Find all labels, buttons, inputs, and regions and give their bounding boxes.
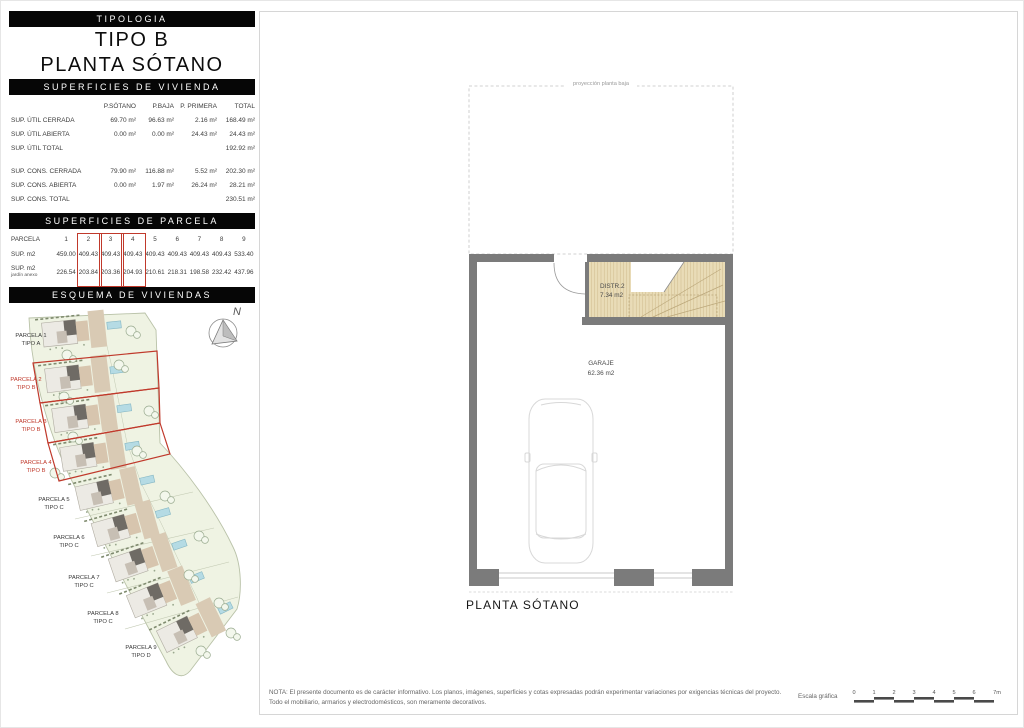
north-compass-icon: N	[209, 306, 241, 347]
plan-caption: PLANTA SÓTANO	[466, 598, 580, 612]
svg-text:0: 0	[852, 690, 855, 696]
parcel-label-4: PARCELA 4 TIPO B	[20, 460, 51, 475]
scale-ticks: 0 1 2 3 4 5 6 7m	[852, 690, 1001, 696]
section-header-superficies-vivienda: SUPERFICIES DE VIVIENDA	[9, 79, 255, 95]
site-plan: N PARCELA 1 TIPO A PARCELA 2 TIPO B PARC…	[9, 303, 257, 691]
svg-text:1: 1	[872, 690, 875, 696]
svg-text:2: 2	[892, 690, 895, 696]
parcel-label-7: PARCELA 7 TIPO C	[68, 575, 99, 590]
projection-label: proyección planta baja	[573, 81, 630, 87]
parcela-table: PARCELA 1 2 3 4 5 6 7 8 9 SUP. m2 459.00…	[9, 232, 255, 282]
scale-label: Escala gráfica	[798, 693, 838, 700]
room-garaje-name: GARAJE	[588, 360, 614, 367]
disclaimer-note: NOTA: El presente documento es de caráct…	[269, 688, 799, 708]
note-line-2: Todo el mobiliario, armarios y electrodo…	[269, 698, 799, 708]
parcel-label-2: PARCELA 2 TIPO B	[10, 377, 41, 392]
parcel-label-8: PARCELA 8 TIPO C	[87, 611, 118, 626]
svg-text:3: 3	[912, 690, 915, 696]
highlight-box-parcela-4	[121, 233, 146, 287]
note-line-1: NOTA: El presente documento es de caráct…	[269, 688, 799, 698]
car-icon	[525, 399, 597, 563]
graphic-scale-bar: 0 1 2 3 4 5 6 7m	[851, 687, 1011, 705]
svg-text:4: 4	[932, 690, 935, 696]
col-header: P. PRIMERA	[174, 103, 217, 110]
table-row: SUP. ÚTIL ABIERTA 0.00 m² 0.00 m² 24.43 …	[9, 127, 255, 141]
col-header: P.BAJA	[136, 103, 174, 110]
svg-text:6: 6	[972, 690, 975, 696]
parcel-label-9: PARCELA 9 TIPO D	[125, 645, 156, 660]
vivienda-table: P.SÓTANO P.BAJA P. PRIMERA TOTAL SUP. ÚT…	[9, 99, 255, 206]
room-distr2-name: DISTR.2	[600, 283, 625, 290]
page-title-planta: PLANTA SÓTANO	[9, 54, 255, 77]
scale-segments	[854, 697, 994, 703]
table-row: SUP. ÚTIL TOTAL 192.92 m²	[9, 141, 255, 155]
svg-text:7m: 7m	[993, 690, 1001, 696]
room-garaje-area: 62.36 m2	[588, 370, 615, 377]
projection-outline	[469, 86, 733, 254]
floor-plan-drawing: proyección planta baja	[431, 61, 821, 631]
svg-text:5: 5	[952, 690, 955, 696]
page-title-tipo: TIPO B	[9, 29, 255, 52]
parcel-label-5: PARCELA 5 TIPO C	[38, 497, 69, 512]
table-row: SUP. CONS. TOTAL 230.51 m²	[9, 192, 255, 206]
section-header-superficies-parcela: SUPERFICIES DE PARCELA	[9, 213, 255, 229]
plan-sheet: TIPOLOGIA TIPO B PLANTA SÓTANO SUPERFICI…	[0, 0, 1024, 728]
parcel-label-6: PARCELA 6 TIPO C	[53, 535, 84, 550]
table-row: SUP. ÚTIL CERRADA 69.70 m² 96.63 m² 2.16…	[9, 113, 255, 127]
room-distr2-area: 7.34 m2	[600, 292, 624, 299]
col-header: TOTAL	[217, 103, 255, 110]
vivienda-header-row: P.SÓTANO P.BAJA P. PRIMERA TOTAL	[9, 99, 255, 113]
table-row: SUP. CONS. CERRADA 79.90 m² 116.88 m² 5.…	[9, 164, 255, 178]
col-header: P.SÓTANO	[95, 103, 136, 110]
parcel-label-3: PARCELA 3 TIPO B	[15, 419, 46, 434]
garage-doors	[499, 573, 692, 578]
section-header-tipologia: TIPOLOGIA	[9, 11, 255, 27]
door-swing-arc	[554, 263, 585, 294]
parcel-label-1: PARCELA 1 TIPO A	[15, 333, 46, 348]
north-label: N	[233, 306, 241, 318]
section-header-esquema: ESQUEMA DE VIVIENDAS	[9, 287, 255, 303]
table-row: SUP. CONS. ABIERTA 0.00 m² 1.97 m² 26.24…	[9, 178, 255, 192]
